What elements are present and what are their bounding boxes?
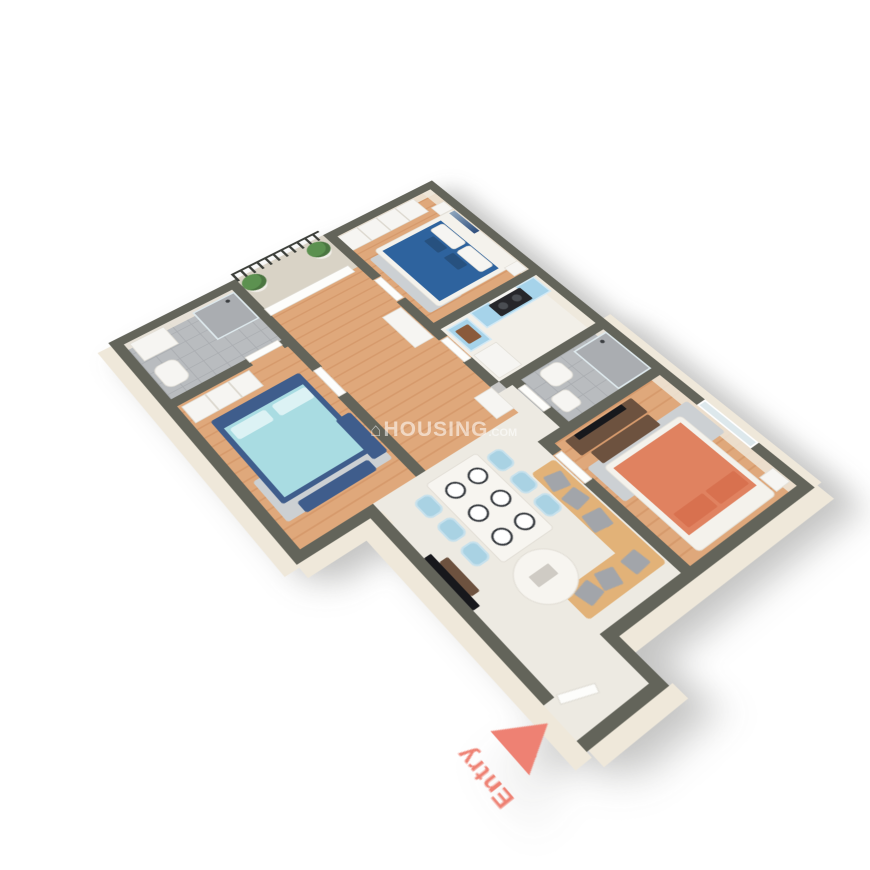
floor-plan: Entry	[108, 184, 850, 806]
housing-watermark: ⌂ HOUSING .COM	[370, 418, 517, 442]
watermark-suffix: .COM	[489, 427, 518, 439]
house-icon: ⌂	[370, 420, 381, 442]
floor-plan-render: Entry ⌂ HOUSING .COM	[0, 0, 870, 870]
watermark-text: HOUSING	[383, 418, 488, 442]
